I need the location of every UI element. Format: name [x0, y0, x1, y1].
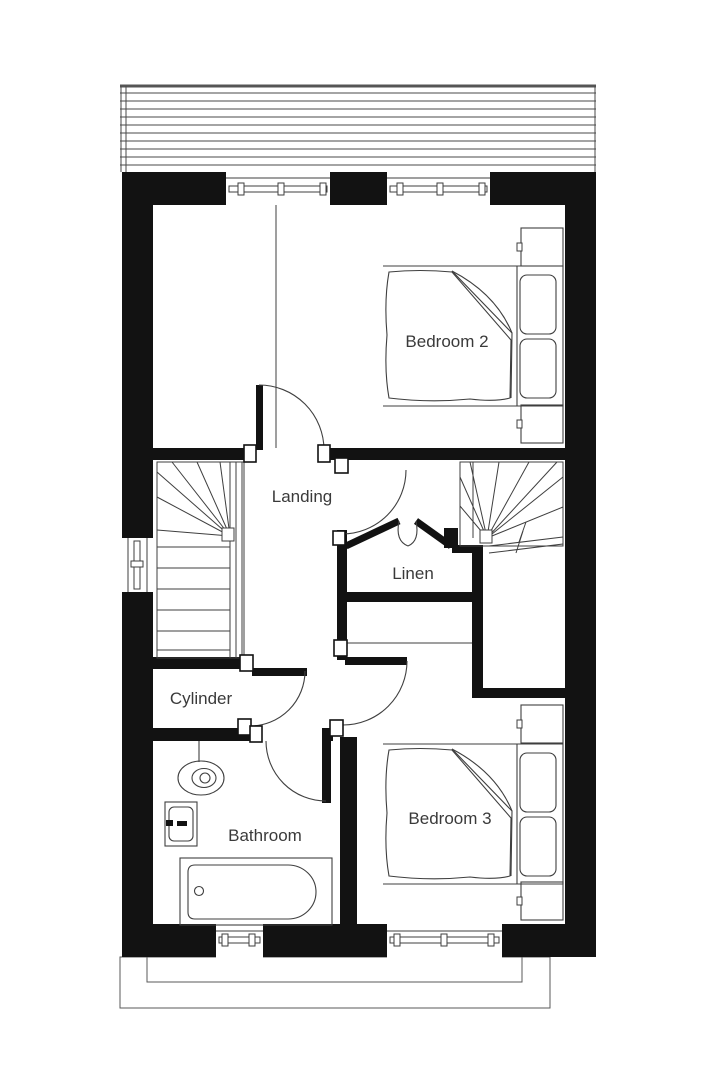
exterior-walls: [122, 172, 596, 957]
door-bedroom2: [244, 385, 330, 462]
interior-walls: [153, 448, 596, 925]
room-label-linen: Linen: [392, 564, 434, 583]
door-cylinder: [238, 655, 307, 735]
wall-bottom: [122, 924, 596, 957]
room-label-bathroom: Bathroom: [228, 826, 302, 845]
wall-top: [122, 172, 596, 205]
pillow: [520, 753, 556, 812]
room-label-cylinder: Cylinder: [170, 689, 233, 708]
window-top-1: [226, 171, 330, 206]
wall-right: [565, 172, 596, 957]
bedside-table-icon: [517, 705, 563, 743]
room-label-bedroom-2: Bedroom 2: [405, 332, 488, 351]
window-bottom-1: [216, 923, 263, 958]
bedside-table-icon: [517, 228, 563, 266]
roof-hatch-icon: [120, 84, 596, 172]
window-top-2: [387, 171, 490, 206]
door-bedroom3: [330, 640, 407, 736]
bedside-table-icon: [517, 405, 563, 443]
floor-plan-drawing: Bedroom 2 Landing Linen Cylinder Bathroo…: [0, 0, 712, 1080]
window-left: [121, 538, 154, 592]
toilet-icon: [178, 741, 224, 795]
pillow: [520, 275, 556, 334]
room-label-landing: Landing: [272, 487, 333, 506]
staircase-left-icon: [157, 462, 244, 658]
bathtub-icon: [180, 858, 332, 925]
room-label-bedroom-3: Bedroom 3: [408, 809, 491, 828]
pillow: [520, 817, 556, 876]
terrace-outline-icon: [120, 957, 550, 1008]
door-bathroom: [250, 726, 331, 803]
pillow: [520, 339, 556, 398]
window-bottom-2: [387, 923, 502, 958]
bedside-table-icon: [517, 882, 563, 920]
floor-plan-page: Bedroom 2 Landing Linen Cylinder Bathroo…: [0, 0, 712, 1080]
basin-icon: [165, 802, 197, 846]
staircase-right-icon: [460, 462, 563, 553]
